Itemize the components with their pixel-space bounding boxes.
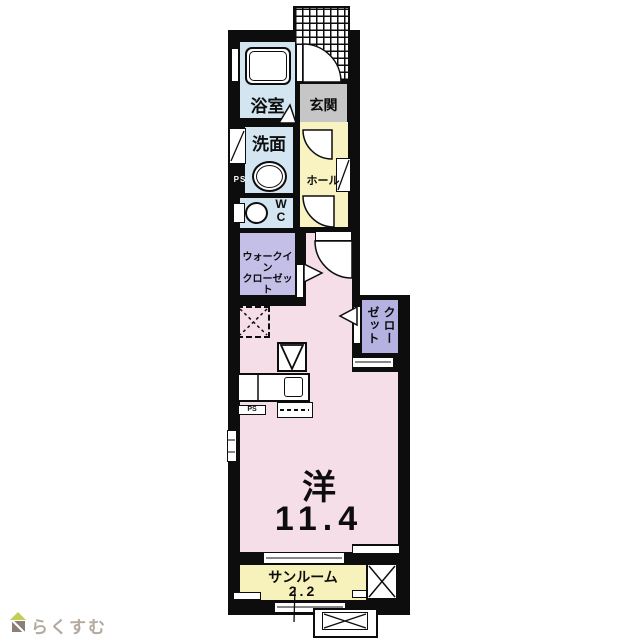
main-room-size-label: 11.4 (240, 500, 398, 539)
washbasin-inner (256, 165, 283, 188)
logo-house-body (12, 621, 25, 632)
sunroom-sliding-door (263, 552, 345, 564)
closet-label: クローゼット (363, 303, 397, 347)
floorplan-canvas: PS (0, 0, 640, 640)
refrigerator-space (277, 342, 307, 372)
washroom-door-panel (229, 128, 246, 164)
bathtub (245, 47, 291, 85)
sunroom-storage-box (366, 563, 398, 600)
bathtub-inner (249, 51, 287, 81)
kitchen-lower-cabinet (277, 402, 313, 418)
toilet-tank (233, 203, 245, 223)
wic-door-panel (296, 264, 304, 298)
ps-upper-label: PS (229, 175, 251, 184)
main-room-upper (306, 233, 352, 306)
washer-space-box (237, 306, 270, 338)
left-wall-window (227, 430, 237, 462)
walk-in-closet-label: ウォークイン クローゼット (240, 252, 295, 296)
outdoor-unit (322, 612, 368, 630)
ps-lower-label: PS (238, 405, 266, 415)
bathroom-label: 浴室 (240, 92, 295, 117)
closet-door-panel (353, 306, 361, 344)
entrance-label: 玄関 (300, 95, 347, 115)
logo-text: らくすむ (31, 613, 107, 638)
washbasin (252, 161, 287, 192)
main-room-door-panel (315, 231, 352, 241)
wc-label: W C (268, 198, 294, 224)
washroom-label: 洗面 (245, 130, 293, 155)
hall-label: ホール (298, 172, 348, 188)
logo-house-icon (10, 612, 26, 620)
kitchen-sink (284, 377, 303, 397)
sunroom-top-right-window (352, 545, 400, 554)
toilet-bowl (245, 202, 268, 224)
entrance-door-panel (296, 44, 303, 82)
closet-side-window (352, 357, 394, 368)
sunroom-size-label: 2.2 (240, 583, 366, 599)
bathroom-window (231, 48, 239, 82)
